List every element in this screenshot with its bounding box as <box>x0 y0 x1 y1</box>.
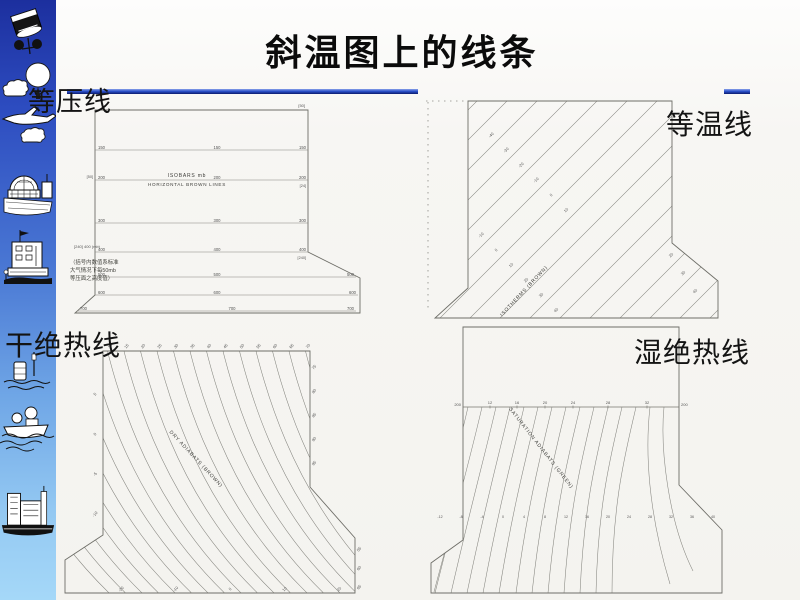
svg-text:600: 600 <box>214 290 222 295</box>
svg-text:-10: -10 <box>91 510 99 518</box>
svg-text:500: 500 <box>347 272 355 277</box>
svg-text:40: 40 <box>692 287 699 294</box>
svg-text:0: 0 <box>92 431 98 437</box>
svg-text:-4: -4 <box>480 515 483 519</box>
svg-text:10: 10 <box>563 206 570 213</box>
svg-text:SATURATION ADIABATS (GREEN): SATURATION ADIABATS (GREEN) <box>507 407 574 490</box>
svg-text:24: 24 <box>627 515 631 519</box>
svg-text:-30: -30 <box>502 146 510 154</box>
svg-text:[240] 400 (mb): [240] 400 (mb) <box>74 244 101 249</box>
svg-text:-10: -10 <box>532 176 540 184</box>
svg-text:DRY ADIABATS (BROWN): DRY ADIABATS (BROWN) <box>168 430 224 489</box>
svg-text:16: 16 <box>585 515 589 519</box>
svg-text:0: 0 <box>227 586 233 592</box>
svg-text:20: 20 <box>668 251 675 258</box>
svg-text:20: 20 <box>336 585 343 592</box>
svg-text:20: 20 <box>140 342 147 349</box>
svg-text:30: 30 <box>680 269 687 276</box>
svg-text:32: 32 <box>669 515 673 519</box>
svg-text:95: 95 <box>311 459 318 466</box>
svg-text:600: 600 <box>98 290 106 295</box>
isobars-caption: 等压线 <box>28 80 112 119</box>
isotherms-caption: 等温线 <box>666 103 753 143</box>
svg-text:200: 200 <box>98 175 106 180</box>
svg-text:75: 75 <box>311 363 318 370</box>
radar-station-icon <box>0 162 56 222</box>
svg-text:35: 35 <box>189 342 196 349</box>
svg-text:20: 20 <box>543 400 548 405</box>
svg-text:200: 200 <box>681 402 688 407</box>
svg-text:300: 300 <box>98 218 106 223</box>
svg-text:28: 28 <box>606 400 611 405</box>
svg-text:10: 10 <box>281 585 288 592</box>
svg-text:[50]: [50] <box>298 103 305 108</box>
svg-text:700: 700 <box>80 306 88 311</box>
svg-text:300: 300 <box>214 218 222 223</box>
svg-text:400: 400 <box>299 247 307 252</box>
svg-text:大气情况下每50mb: 大气情况下每50mb <box>70 266 116 274</box>
svg-text:700: 700 <box>347 306 355 311</box>
title-rule <box>67 89 418 94</box>
svg-text:40: 40 <box>553 306 560 313</box>
svg-text:[50]: [50] <box>87 175 93 179</box>
svg-text:70: 70 <box>305 342 312 349</box>
svg-text:0: 0 <box>502 515 504 519</box>
svg-text:4: 4 <box>523 515 525 519</box>
svg-text:0: 0 <box>548 192 554 198</box>
svg-text:150: 150 <box>299 145 307 150</box>
svg-text:25: 25 <box>156 342 163 349</box>
svg-text:80: 80 <box>311 387 318 394</box>
cloud-icon <box>0 126 56 146</box>
svg-text:700: 700 <box>229 306 237 311</box>
svg-text:200: 200 <box>299 175 307 180</box>
svg-text:55: 55 <box>255 342 262 349</box>
svg-text:-20: -20 <box>517 161 525 169</box>
svg-text:85: 85 <box>311 411 318 418</box>
svg-text:32: 32 <box>645 400 650 405</box>
dry-adiabats-caption: 干绝热线 <box>5 324 121 364</box>
svg-text:60: 60 <box>272 342 279 349</box>
svg-text:50: 50 <box>239 342 246 349</box>
svg-text:12: 12 <box>564 515 568 519</box>
svg-text:-10: -10 <box>477 231 485 239</box>
svg-text:16: 16 <box>515 400 520 405</box>
svg-text:-8: -8 <box>459 515 462 519</box>
ship-icon <box>0 402 56 452</box>
svg-text:65: 65 <box>356 583 363 590</box>
svg-text:0: 0 <box>493 247 499 253</box>
svg-text:150: 150 <box>98 145 106 150</box>
svg-text:150: 150 <box>214 145 222 150</box>
svg-text:-12: -12 <box>437 515 442 519</box>
svg-text:30: 30 <box>173 342 180 349</box>
svg-text:65: 65 <box>288 342 295 349</box>
svg-text:200: 200 <box>214 175 222 180</box>
svg-text:400: 400 <box>214 247 222 252</box>
svg-text:-10: -10 <box>172 585 180 593</box>
svg-text:20: 20 <box>606 515 610 519</box>
svg-text:15: 15 <box>123 342 130 349</box>
svg-text:12: 12 <box>488 400 493 405</box>
svg-text:60: 60 <box>356 564 363 571</box>
isobars-diagram: 1501501502002002003003003004004004005005… <box>62 98 407 328</box>
svg-text:40: 40 <box>206 342 213 349</box>
slide-title: 斜温图上的线条 <box>265 24 538 76</box>
svg-text:300: 300 <box>299 218 307 223</box>
svg-text:HORIZONTAL BROWN LINES: HORIZONTAL BROWN LINES <box>148 182 226 187</box>
title-rule-right-dash <box>724 89 750 94</box>
satellite-icon <box>0 4 56 60</box>
svg-text:36: 36 <box>690 515 694 519</box>
observatory-icon <box>0 228 56 292</box>
svg-text:5: 5 <box>92 391 98 397</box>
svg-text:600: 600 <box>349 290 357 295</box>
svg-text:ISOBARS mb: ISOBARS mb <box>168 173 207 179</box>
dry-adiabats-diagram: 1015202530354045505560657050-5-107580859… <box>52 340 372 600</box>
svg-text:-5: -5 <box>92 470 99 477</box>
svg-text:40: 40 <box>711 515 715 519</box>
svg-text:24: 24 <box>571 400 576 405</box>
svg-text:500: 500 <box>214 272 222 277</box>
svg-text:[240]: [240] <box>298 256 306 260</box>
harbor-icon <box>0 482 56 544</box>
svg-text:30: 30 <box>538 291 545 298</box>
svg-text:8: 8 <box>544 515 546 519</box>
svg-text:等压面之高度值）: 等压面之高度值） <box>70 274 113 282</box>
svg-text:-40: -40 <box>487 131 495 139</box>
svg-text:200: 200 <box>454 402 461 407</box>
svg-text:ISOTHERMS (BROWN): ISOTHERMS (BROWN) <box>499 265 549 318</box>
svg-text:28: 28 <box>648 515 652 519</box>
svg-text:10: 10 <box>508 261 515 268</box>
slide: { "slide": { "title": "斜温图上的线条", "panel_… <box>0 0 800 600</box>
svg-text:55: 55 <box>356 545 363 552</box>
svg-text:[24]: [24] <box>300 184 306 188</box>
svg-text:45: 45 <box>222 342 229 349</box>
svg-text:90: 90 <box>311 435 318 442</box>
svg-text:（括号内数值系标准: （括号内数值系标准 <box>70 258 119 266</box>
moist-adiabats-caption: 湿绝热线 <box>634 331 750 371</box>
